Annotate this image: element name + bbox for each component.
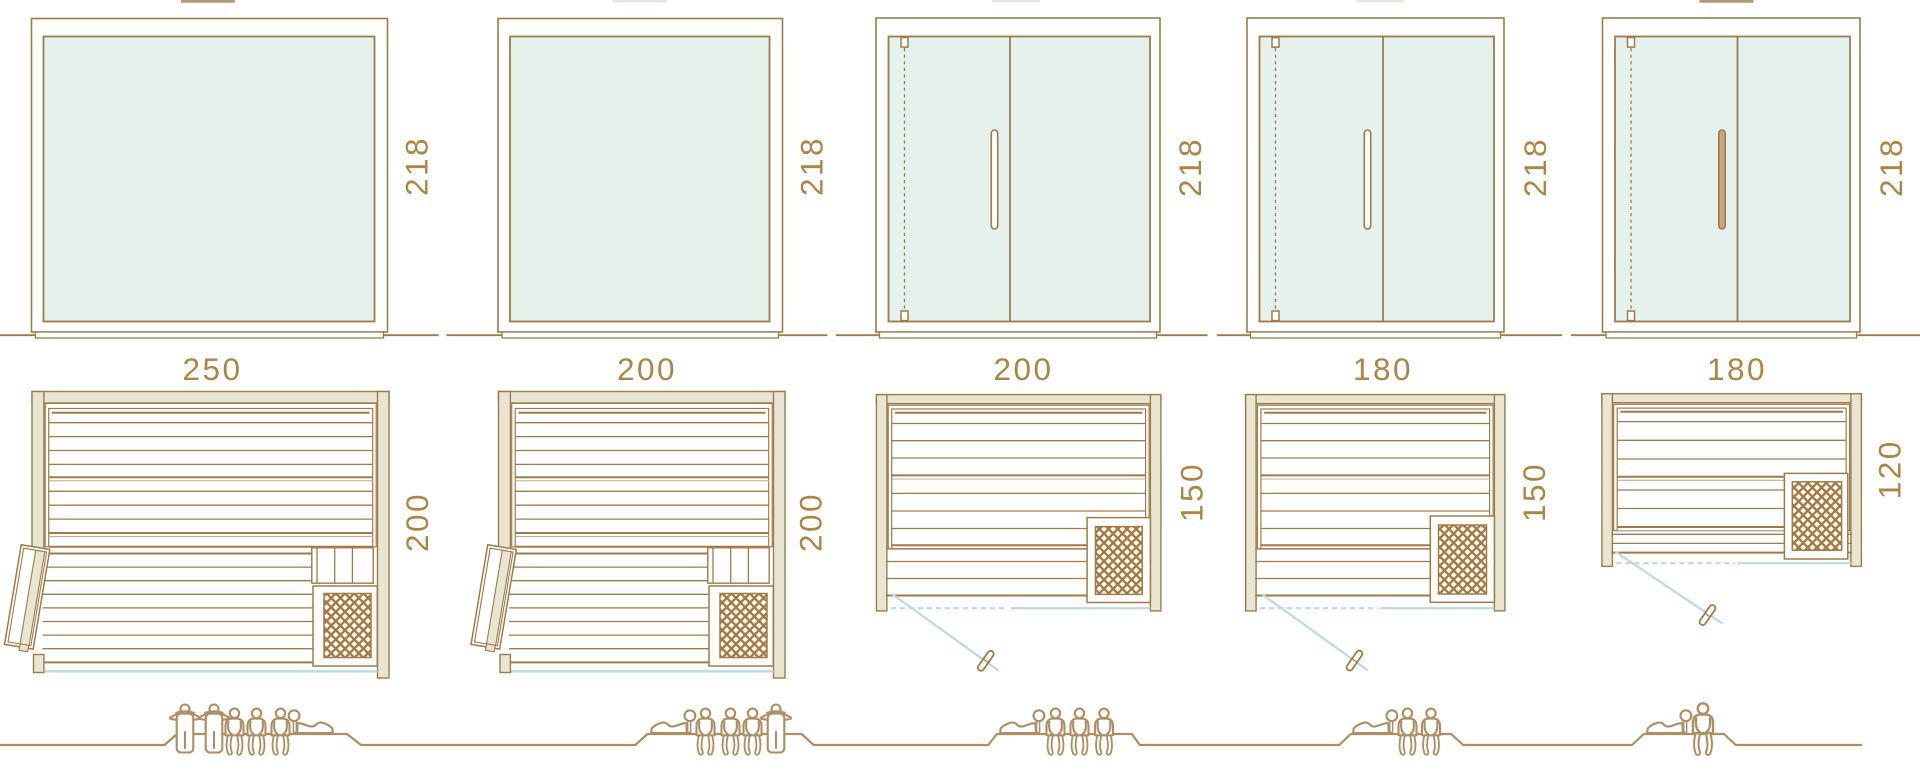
svg-text:150: 150 xyxy=(1174,462,1210,522)
svg-text:218: 218 xyxy=(1172,137,1208,197)
svg-text:250: 250 xyxy=(182,351,242,387)
svg-text:218: 218 xyxy=(794,136,830,196)
svg-text:120: 120 xyxy=(1872,439,1908,499)
svg-text:180: 180 xyxy=(1707,351,1767,387)
svg-text:200: 200 xyxy=(793,492,829,552)
svg-text:200: 200 xyxy=(617,351,677,387)
svg-text:218: 218 xyxy=(399,136,435,196)
svg-text:200: 200 xyxy=(993,351,1053,387)
svg-text:218: 218 xyxy=(1517,137,1553,197)
svg-text:150: 150 xyxy=(1516,462,1552,522)
svg-text:218: 218 xyxy=(1873,137,1909,197)
svg-text:200: 200 xyxy=(399,492,435,552)
svg-text:180: 180 xyxy=(1353,351,1413,387)
